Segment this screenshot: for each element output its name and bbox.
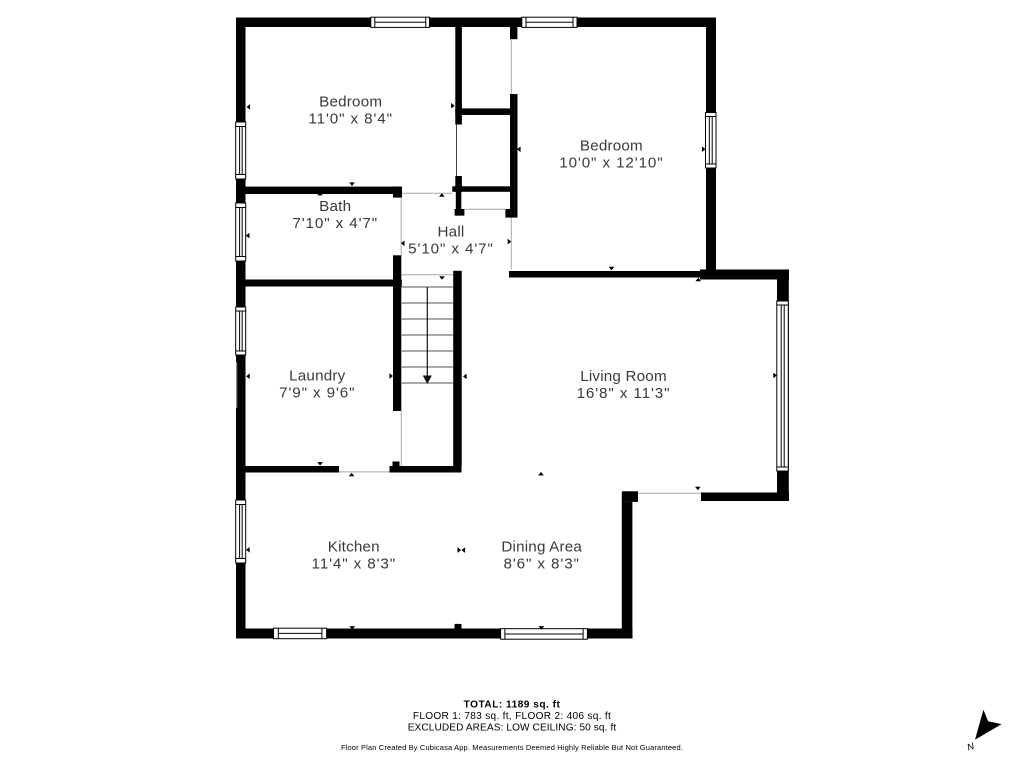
svg-text:8'6" x 8'3": 8'6" x 8'3": [504, 555, 580, 572]
svg-text:Bath: Bath: [319, 198, 351, 215]
svg-text:7'9" x 9'6": 7'9" x 9'6": [279, 385, 355, 402]
svg-text:11'0" x 8'4": 11'0" x 8'4": [308, 111, 393, 128]
svg-text:Hall: Hall: [438, 223, 465, 240]
svg-text:10'0" x 12'10": 10'0" x 12'10": [559, 154, 663, 171]
svg-text:TOTAL: 1189 sq. ft: TOTAL: 1189 sq. ft: [464, 700, 561, 711]
svg-text:Kitchen: Kitchen: [328, 538, 380, 555]
svg-text:16'8" x 11'3": 16'8" x 11'3": [577, 385, 671, 402]
svg-text:Bedroom: Bedroom: [319, 94, 382, 111]
svg-text:Floor Plan Created By Cubicasa: Floor Plan Created By Cubicasa App. Meas…: [341, 743, 683, 752]
svg-text:11'4" x 8'3": 11'4" x 8'3": [312, 555, 397, 572]
svg-text:Dining Area: Dining Area: [501, 538, 582, 555]
svg-text:FLOOR 1: 783 sq. ft, FLOOR 2:: FLOOR 1: 783 sq. ft, FLOOR 2: 406 sq. ft: [413, 711, 611, 722]
svg-text:Laundry: Laundry: [289, 368, 345, 385]
svg-text:7'10" x 4'7": 7'10" x 4'7": [292, 215, 378, 232]
svg-text:EXCLUDED AREAS: LOW CEILING: 5: EXCLUDED AREAS: LOW CEILING: 50 sq. ft: [408, 722, 617, 733]
svg-text:Bedroom: Bedroom: [580, 137, 643, 154]
svg-text:Living Room: Living Room: [580, 368, 667, 385]
svg-text:5'10" x 4'7": 5'10" x 4'7": [408, 240, 494, 257]
